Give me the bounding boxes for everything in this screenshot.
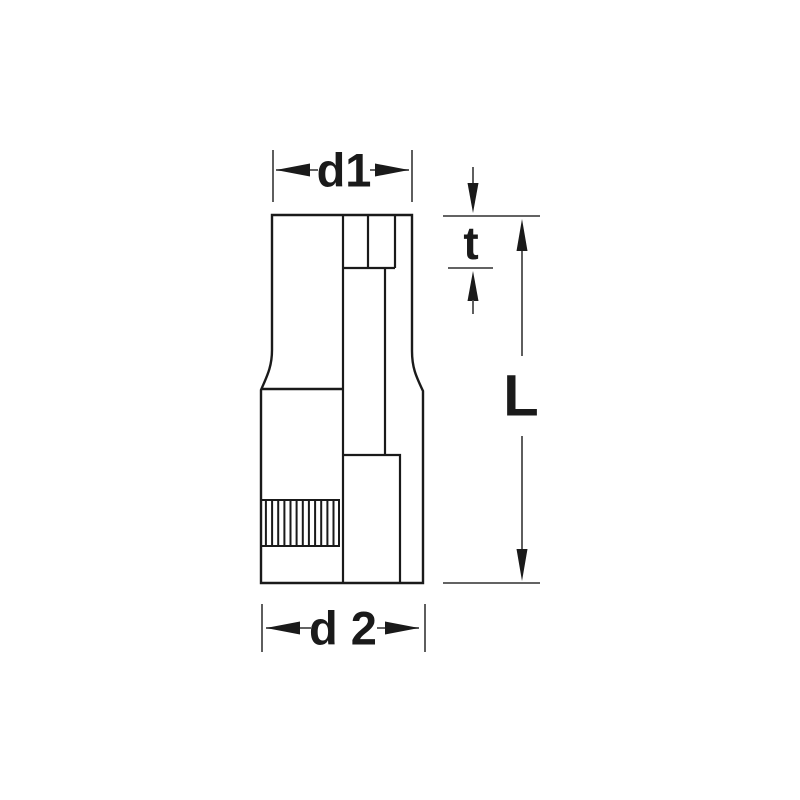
hex-socket-recess — [343, 455, 400, 583]
knurl-band — [261, 500, 339, 546]
cross-section-lines — [343, 215, 400, 583]
d2-dimension: d 2 — [262, 602, 425, 655]
square-drive-recess — [343, 215, 395, 268]
l-arrow-up — [517, 219, 528, 251]
d1-label: d1 — [317, 144, 372, 197]
t-arrow-down — [468, 183, 479, 213]
l-label: L — [503, 364, 538, 429]
d2-label: d 2 — [309, 602, 377, 655]
d1-arrow-right — [375, 164, 409, 177]
t-label: t — [463, 217, 478, 269]
d2-arrow-right — [385, 622, 419, 635]
t-arrow-up — [468, 271, 479, 301]
l-dimension: L — [443, 219, 540, 583]
l-arrow-down — [517, 549, 528, 581]
socket-drawing: d1 t L d 2 — [0, 0, 800, 800]
technical-drawing-canvas: d1 t L d 2 — [0, 0, 800, 800]
d1-dimension: d1 — [273, 144, 412, 203]
d1-arrow-left — [276, 164, 310, 177]
d2-arrow-left — [266, 622, 300, 635]
knurl-hatching — [266, 500, 334, 546]
